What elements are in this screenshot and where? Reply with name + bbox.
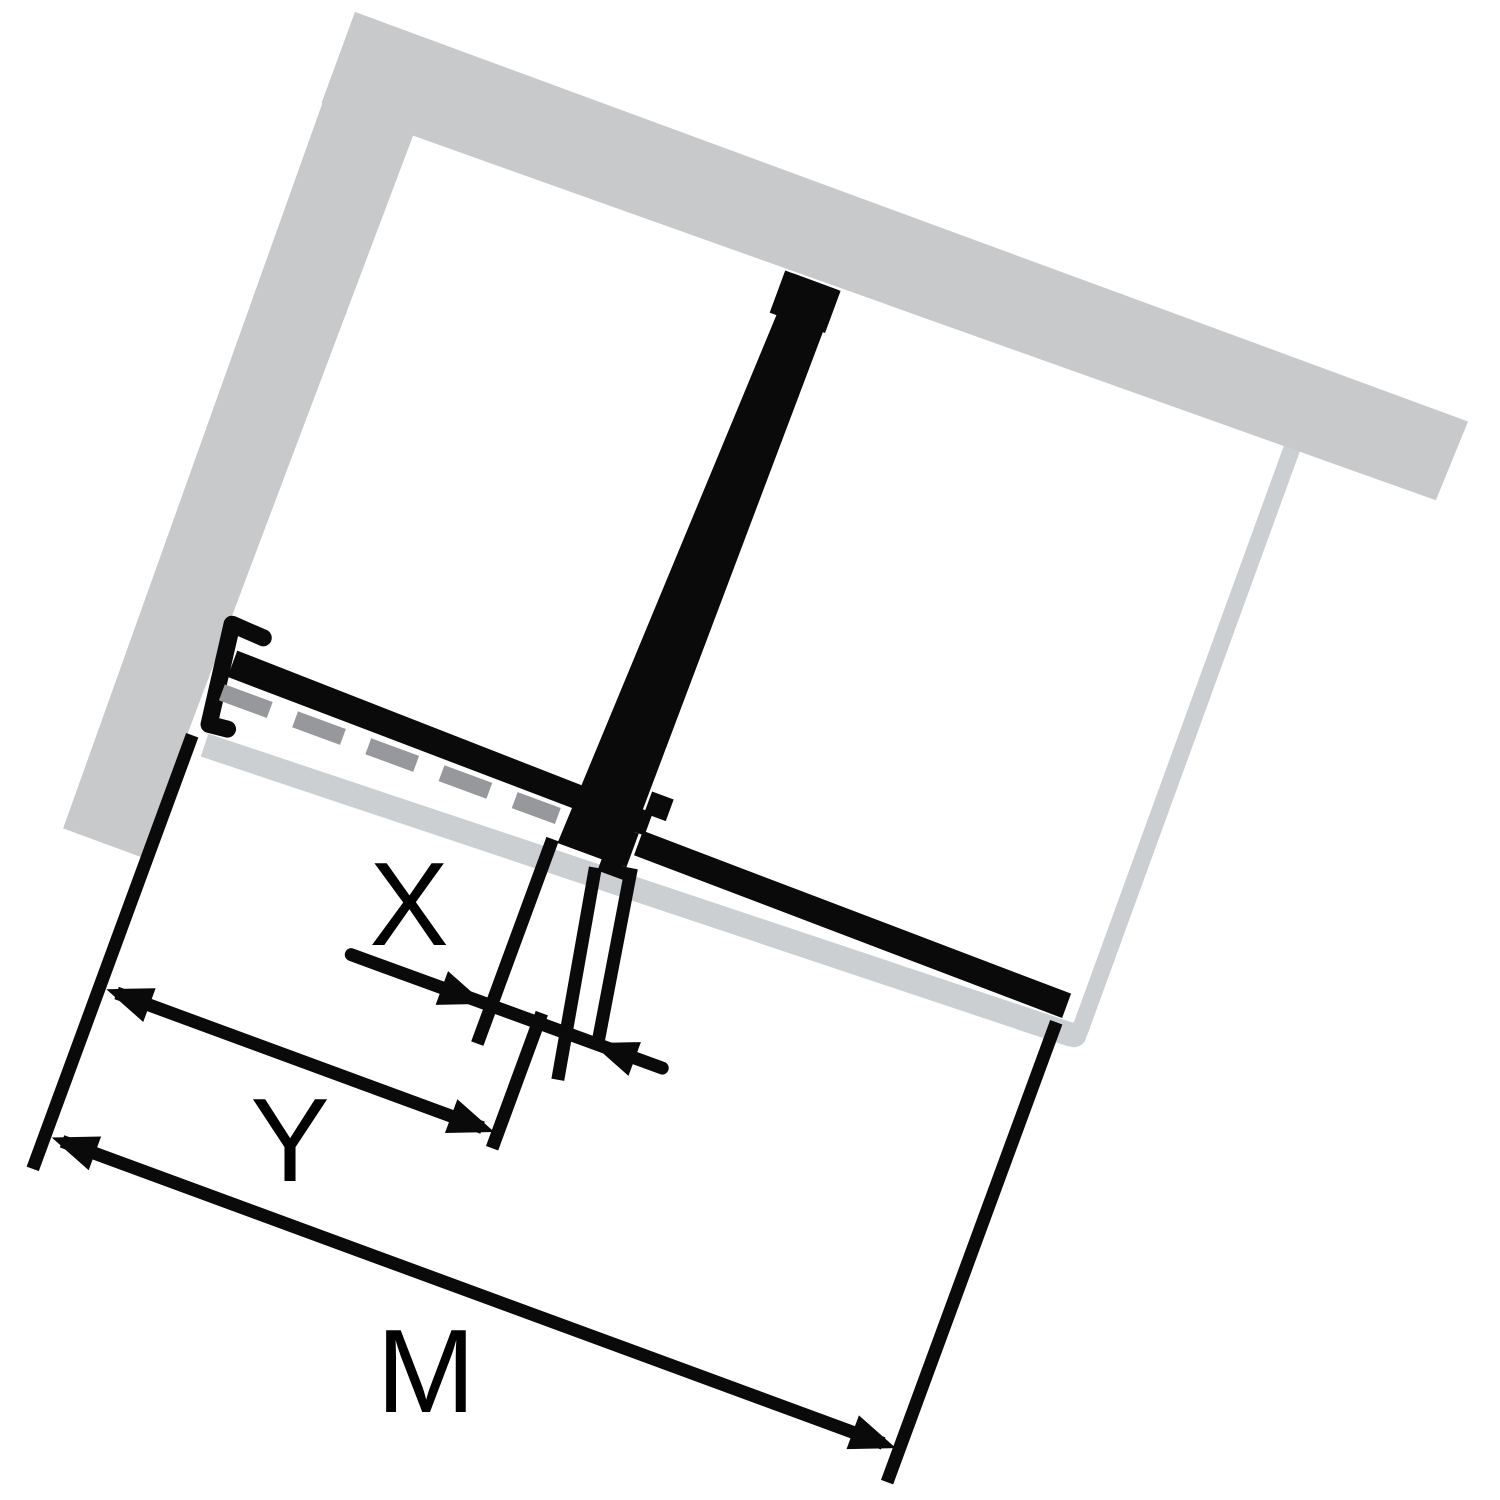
svg-text:Y: Y [250,1074,329,1207]
svg-text:M: M [376,1305,475,1438]
svg-text:X: X [369,838,448,971]
